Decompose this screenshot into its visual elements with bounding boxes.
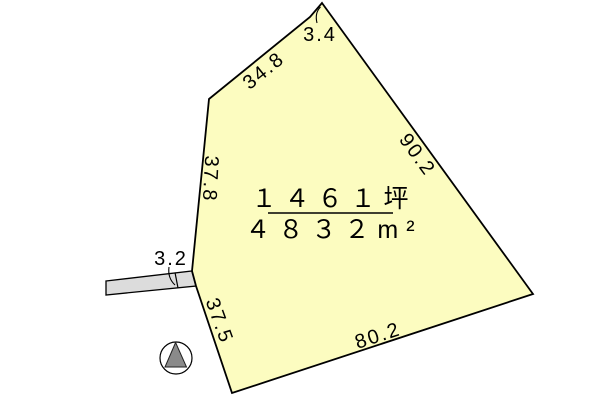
area-tsubo-text: １４６１坪 bbox=[251, 185, 416, 213]
dimension-apex: 3.4 bbox=[303, 24, 337, 46]
north-arrow-icon bbox=[160, 342, 192, 374]
dimension-left: 37.8 bbox=[198, 155, 222, 203]
site-plan-canvas: 34.8 3.4 90.2 37.8 3.2 37.5 80.2 １４６１坪 ４… bbox=[0, 0, 600, 400]
road-band bbox=[106, 271, 196, 295]
site-plan-drawing: 34.8 3.4 90.2 37.8 3.2 37.5 80.2 １４６１坪 ４… bbox=[0, 0, 600, 400]
area-sqm-text: ４８３２m² bbox=[245, 216, 422, 244]
road bbox=[106, 267, 196, 295]
dimension-road-width: 3.2 bbox=[154, 248, 188, 270]
